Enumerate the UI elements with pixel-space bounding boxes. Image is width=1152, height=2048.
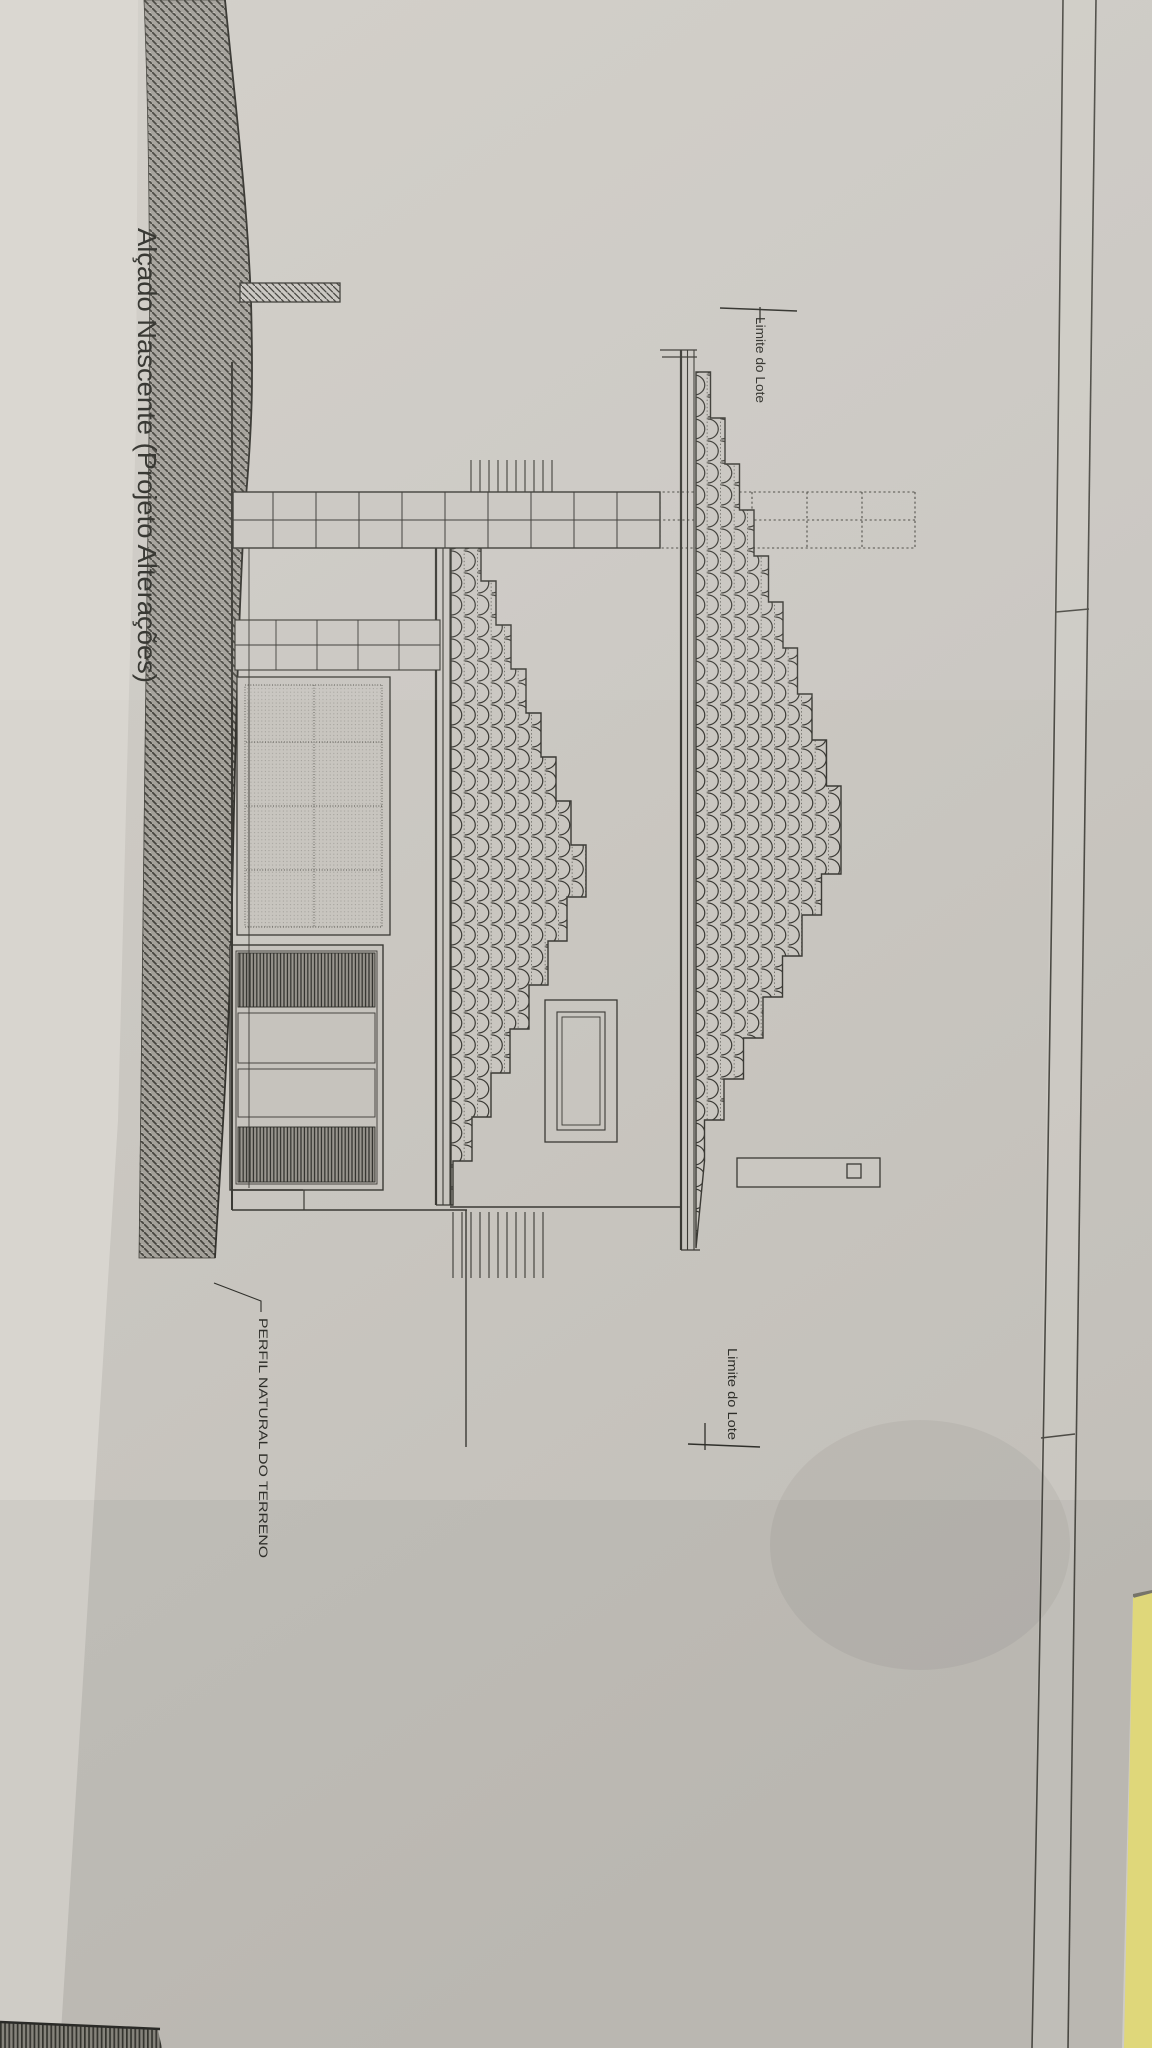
drawing-canvas: Limite do Lote Limite do Lote PERFIL NAT… bbox=[0, 0, 1152, 2048]
light-falloff-top bbox=[0, 0, 1152, 700]
photo-of-architectural-drawing: Limite do Lote Limite do Lote PERFIL NAT… bbox=[0, 0, 1152, 2048]
light-falloff-bottom bbox=[0, 1500, 1152, 2048]
shutter-plain-panel-1 bbox=[238, 1013, 375, 1063]
louvered-shutters bbox=[230, 945, 383, 1190]
shutter-slat-panel-right bbox=[238, 1127, 375, 1182]
lot-limit-bottom-label: Limite do Lote bbox=[725, 1348, 740, 1440]
shutter-plain-panel-2 bbox=[238, 1069, 375, 1117]
shutter-slat-panel-left bbox=[238, 953, 375, 1007]
flue-chimney bbox=[737, 1158, 880, 1187]
gridded-window bbox=[237, 677, 390, 935]
